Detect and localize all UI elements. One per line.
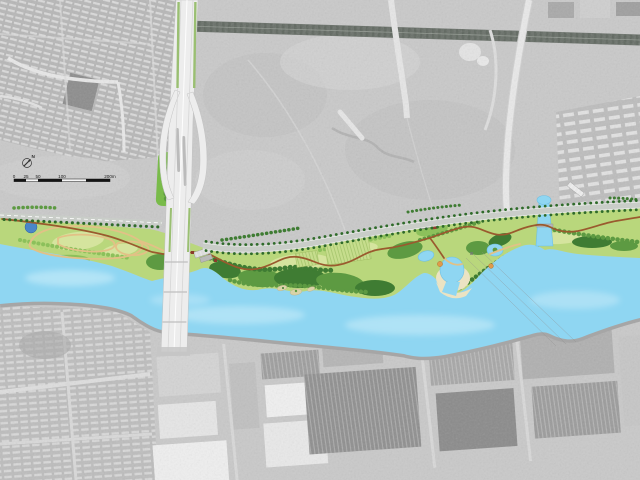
masterplan-map: N 0 25 50 100 200m: [0, 0, 640, 480]
scale-tick-label: 200m: [104, 174, 116, 179]
scale-tick-label: 50: [35, 174, 41, 179]
bridge-south-landing: [157, 347, 190, 356]
pavilion: [489, 264, 494, 269]
scale-tick-label: 100: [58, 174, 66, 179]
pavilion: [437, 261, 442, 266]
masterplan-map-canvas: N 0 25 50 100 200m: [0, 0, 640, 480]
scale-tick-label: 25: [23, 174, 29, 179]
scale-tick-label: 0: [13, 174, 16, 179]
lagoon: [440, 257, 464, 283]
